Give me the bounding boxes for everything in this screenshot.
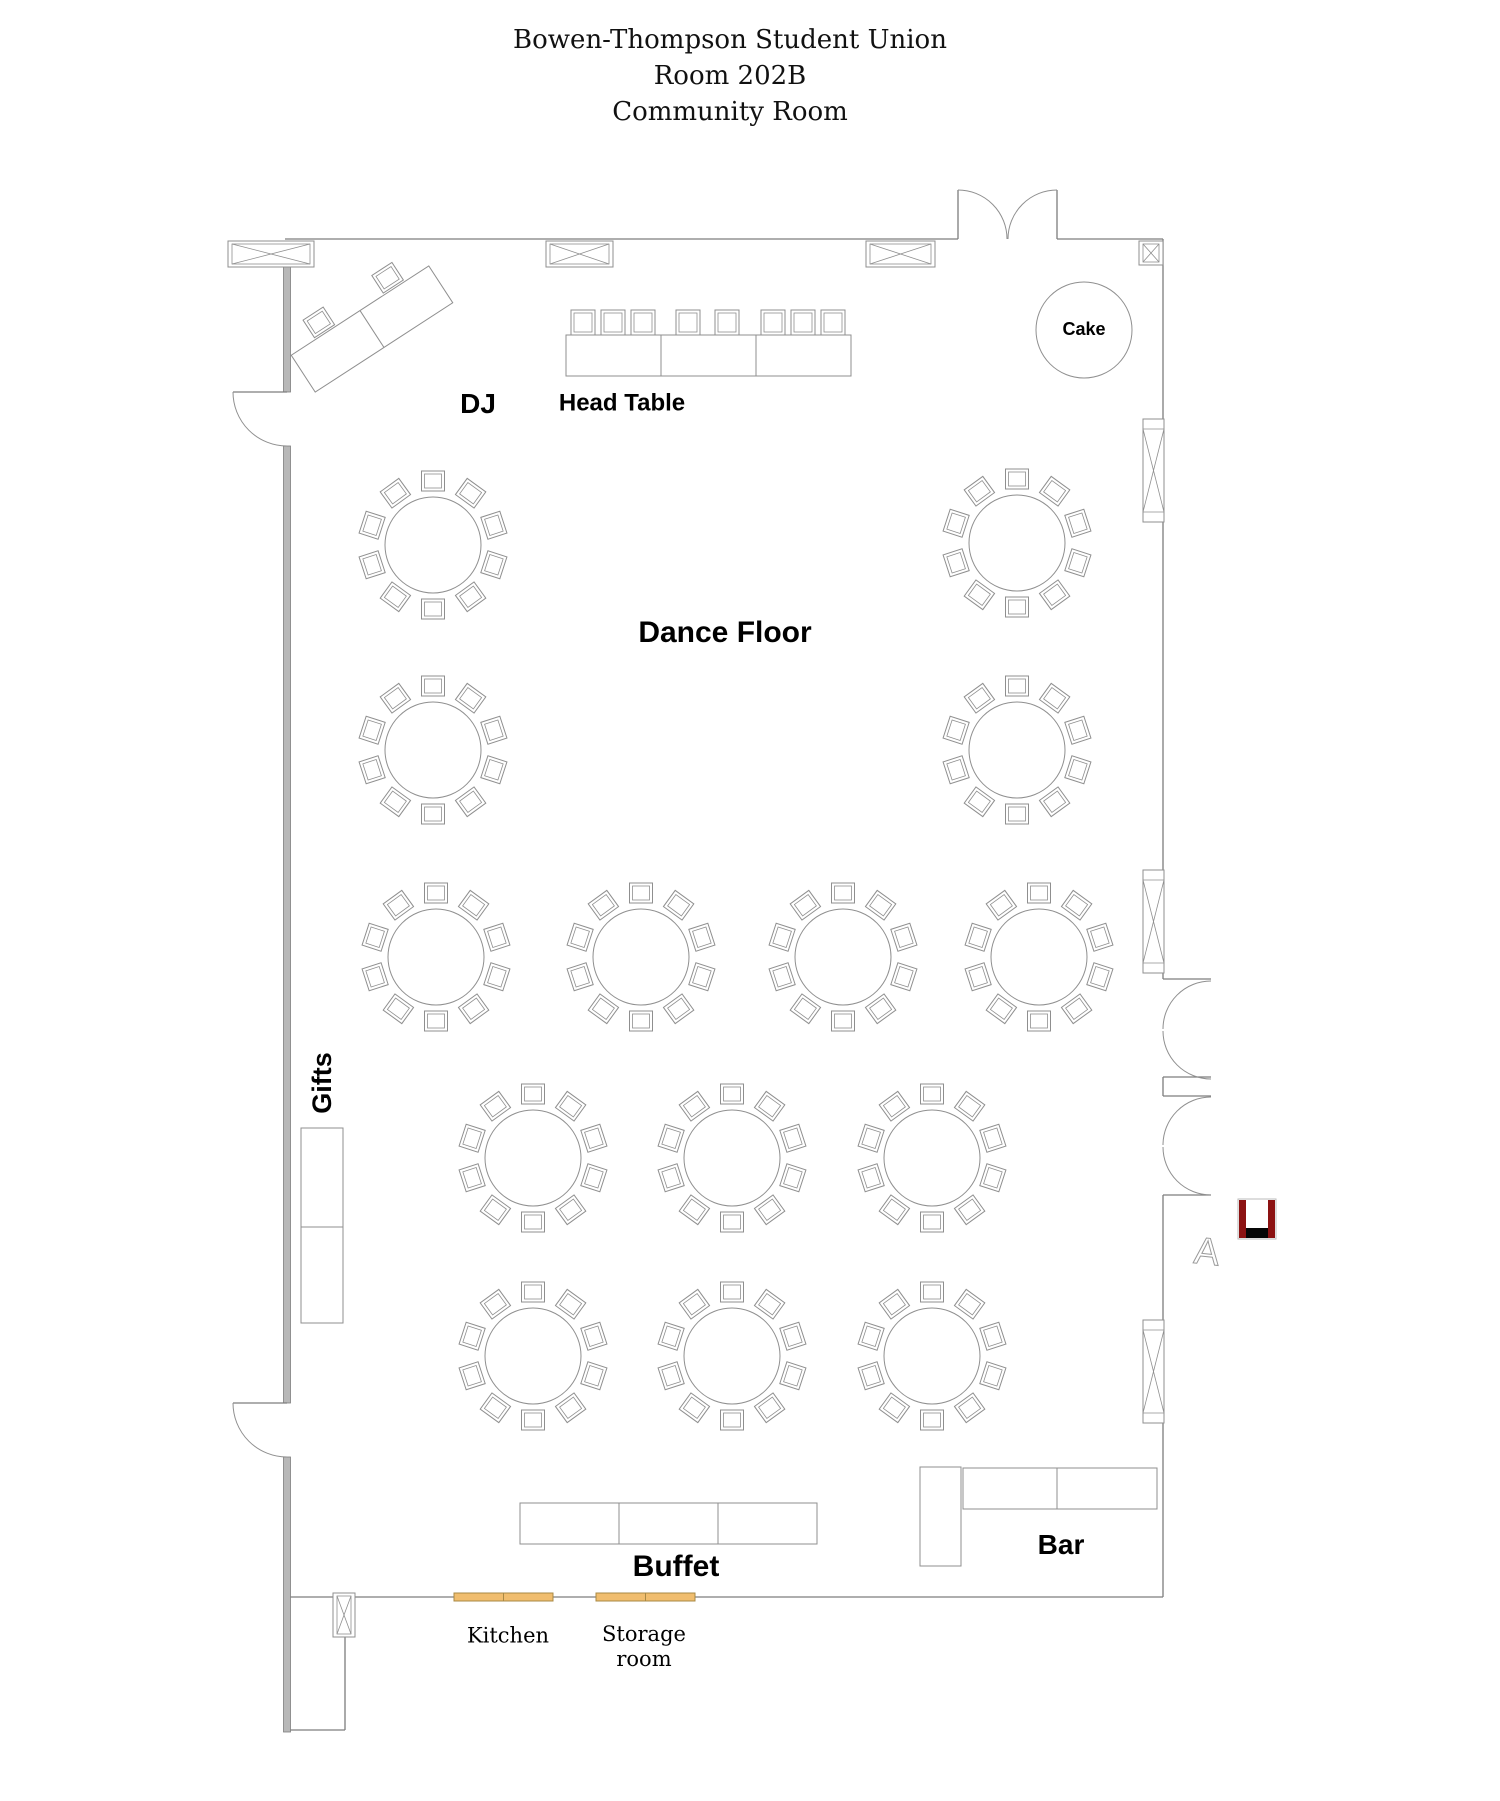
- chair: [858, 1124, 884, 1152]
- chair: [721, 1282, 744, 1302]
- chair: [480, 1195, 510, 1225]
- chair: [754, 1289, 784, 1319]
- chair: [581, 1322, 607, 1350]
- chair: [567, 963, 593, 991]
- chair: [380, 478, 410, 508]
- door-swing-arc: [1163, 1031, 1211, 1079]
- chair: [380, 787, 410, 817]
- door-swing-arc: [958, 190, 1007, 239]
- chair: [964, 476, 994, 506]
- chair: [980, 1164, 1006, 1192]
- chair: [943, 756, 969, 784]
- chair: [721, 1410, 744, 1430]
- chair: [588, 994, 618, 1024]
- chair: [1061, 890, 1091, 920]
- chair: [1006, 469, 1029, 489]
- chair: [1065, 549, 1091, 577]
- bar-label: Bar: [1038, 1528, 1085, 1562]
- buffet-label: Buffet: [633, 1549, 720, 1585]
- chair: [658, 1164, 684, 1192]
- a-section-marker: A: [1192, 1230, 1222, 1274]
- round-table: [769, 883, 917, 1031]
- chair: [769, 963, 795, 991]
- chair: [980, 1322, 1006, 1350]
- wall-thick: [284, 446, 291, 1403]
- round-table: [359, 471, 507, 619]
- chair: [986, 994, 1016, 1024]
- chair: [459, 1322, 485, 1350]
- chair: [481, 716, 507, 744]
- chair: [658, 1322, 684, 1350]
- chair: [458, 994, 488, 1024]
- chair: [689, 923, 715, 951]
- wall-thick: [284, 267, 291, 392]
- chair: [790, 890, 820, 920]
- chair: [921, 1212, 944, 1232]
- chair: [780, 1164, 806, 1192]
- chair: [658, 1124, 684, 1152]
- chair: [581, 1362, 607, 1390]
- chair: [921, 1084, 944, 1104]
- chair: [425, 1011, 448, 1031]
- chair: [858, 1362, 884, 1390]
- column-symbol: [866, 241, 935, 267]
- chair: [1039, 476, 1069, 506]
- round-table: [658, 1282, 806, 1430]
- chair: [522, 1282, 545, 1302]
- chair: [754, 1393, 784, 1423]
- chair: [1006, 597, 1029, 617]
- chair: [832, 883, 855, 903]
- chair: [581, 1164, 607, 1192]
- round-table: [658, 1084, 806, 1232]
- chair: [986, 890, 1016, 920]
- gifts-table: [301, 1128, 343, 1323]
- chair: [679, 1195, 709, 1225]
- chair: [362, 923, 388, 951]
- chair: [481, 511, 507, 539]
- chair: [455, 478, 485, 508]
- chair: [954, 1091, 984, 1121]
- chair: [484, 963, 510, 991]
- chair: [422, 804, 445, 824]
- chair: [879, 1393, 909, 1423]
- page-title-line3: Community Room: [612, 97, 848, 127]
- chair: [1028, 1011, 1051, 1031]
- chair: [790, 994, 820, 1024]
- chair: [943, 716, 969, 744]
- buffet-table: [520, 1503, 817, 1544]
- door-swing-arc: [1163, 1147, 1211, 1195]
- chair: [458, 890, 488, 920]
- chair: [858, 1164, 884, 1192]
- column-symbol: [546, 241, 613, 267]
- chair: [383, 890, 413, 920]
- chair: [879, 1289, 909, 1319]
- dj-table: [279, 247, 453, 393]
- chair: [954, 1289, 984, 1319]
- chair: [455, 683, 485, 713]
- chair: [689, 963, 715, 991]
- chair: [865, 890, 895, 920]
- chair: [761, 310, 785, 335]
- chair: [754, 1195, 784, 1225]
- chair: [1039, 683, 1069, 713]
- door-swing-arc: [233, 392, 287, 446]
- door-swing-arc: [1163, 1097, 1211, 1145]
- round-table: [943, 676, 1091, 824]
- chair: [1065, 716, 1091, 744]
- chair: [891, 923, 917, 951]
- chair: [480, 1393, 510, 1423]
- chair: [480, 1289, 510, 1319]
- round-table: [858, 1084, 1006, 1232]
- chair: [459, 1362, 485, 1390]
- chair: [858, 1322, 884, 1350]
- floor-plan-drawing: A: [0, 0, 1500, 1801]
- chair: [481, 756, 507, 784]
- column-symbol: [228, 241, 314, 267]
- chair: [780, 1362, 806, 1390]
- round-table: [459, 1282, 607, 1430]
- chair: [954, 1195, 984, 1225]
- chair: [455, 787, 485, 817]
- chair: [555, 1289, 585, 1319]
- floor-plan-page: A Bowen-Thompson Student Union Room 202B…: [0, 0, 1500, 1801]
- chair: [1006, 676, 1029, 696]
- chair: [359, 716, 385, 744]
- chair: [1065, 756, 1091, 784]
- chair: [921, 1410, 944, 1430]
- chair: [891, 963, 917, 991]
- chair: [943, 509, 969, 537]
- chair: [567, 923, 593, 951]
- chair: [1028, 883, 1051, 903]
- chair: [721, 1212, 744, 1232]
- round-table: [943, 469, 1091, 617]
- round-table: [362, 883, 510, 1031]
- chair: [601, 310, 625, 335]
- column-symbol: [1139, 241, 1163, 265]
- chair: [383, 994, 413, 1024]
- chair: [791, 310, 815, 335]
- chair: [422, 676, 445, 696]
- chair: [459, 1164, 485, 1192]
- chair: [484, 923, 510, 951]
- cake-label: Cake: [1062, 319, 1105, 341]
- chair: [663, 994, 693, 1024]
- round-table: [858, 1282, 1006, 1430]
- chair: [630, 883, 653, 903]
- chair: [832, 1011, 855, 1031]
- chair: [1039, 787, 1069, 817]
- chair: [964, 683, 994, 713]
- round-table: [359, 676, 507, 824]
- chair: [1039, 580, 1069, 610]
- chair: [630, 1011, 653, 1031]
- chair: [522, 1084, 545, 1104]
- chair: [769, 923, 795, 951]
- chair: [455, 582, 485, 612]
- chair: [658, 1362, 684, 1390]
- round-table: [965, 883, 1113, 1031]
- dance-floor-label: Dance Floor: [638, 615, 811, 651]
- chair: [425, 883, 448, 903]
- chair: [954, 1393, 984, 1423]
- door-swing-arc: [1163, 981, 1211, 1029]
- chair: [380, 683, 410, 713]
- chair: [780, 1124, 806, 1152]
- chair: [980, 1362, 1006, 1390]
- chair: [480, 1091, 510, 1121]
- chair: [754, 1091, 784, 1121]
- chair: [679, 1091, 709, 1121]
- chair: [964, 787, 994, 817]
- chair: [980, 1124, 1006, 1152]
- chair: [481, 551, 507, 579]
- chair: [522, 1410, 545, 1430]
- chair: [821, 310, 845, 335]
- chair: [721, 1084, 744, 1104]
- chair: [631, 310, 655, 335]
- chair: [679, 1393, 709, 1423]
- chair: [921, 1282, 944, 1302]
- chair: [715, 310, 739, 335]
- chair: [879, 1091, 909, 1121]
- chair: [780, 1322, 806, 1350]
- chair: [571, 310, 595, 335]
- chair: [965, 963, 991, 991]
- chair: [676, 310, 700, 335]
- head-table: [566, 310, 851, 376]
- chair: [1087, 923, 1113, 951]
- dj-label: DJ: [460, 387, 496, 421]
- chair: [679, 1289, 709, 1319]
- service-door: [454, 1593, 553, 1601]
- chair: [1087, 963, 1113, 991]
- chair: [943, 549, 969, 577]
- page-title-line2: Room 202B: [654, 61, 807, 91]
- exit-marker-icon: [1238, 1199, 1276, 1239]
- door-swing-arc: [1008, 190, 1057, 239]
- chair: [359, 756, 385, 784]
- chair: [422, 599, 445, 619]
- chair: [663, 890, 693, 920]
- wall-thick: [284, 1457, 291, 1732]
- chair: [1065, 509, 1091, 537]
- chair: [965, 923, 991, 951]
- chair: [359, 511, 385, 539]
- door-swing-arc: [233, 1403, 287, 1457]
- round-table: [567, 883, 715, 1031]
- round-table: [459, 1084, 607, 1232]
- chair: [555, 1393, 585, 1423]
- chair: [359, 551, 385, 579]
- window-symbol: [1143, 1320, 1164, 1423]
- chair: [555, 1195, 585, 1225]
- chair: [380, 582, 410, 612]
- chair: [1006, 804, 1029, 824]
- chair: [879, 1195, 909, 1225]
- storage-room-label: Storage room: [602, 1622, 686, 1672]
- chair: [865, 994, 895, 1024]
- chair: [362, 963, 388, 991]
- column-symbol: [333, 1593, 355, 1637]
- chair: [522, 1212, 545, 1232]
- chair: [588, 890, 618, 920]
- gifts-label: Gifts: [306, 1052, 338, 1114]
- chair: [964, 580, 994, 610]
- page-title-line1: Bowen-Thompson Student Union: [513, 25, 947, 55]
- window-symbol: [1143, 870, 1164, 973]
- chair: [555, 1091, 585, 1121]
- head-table-label: Head Table: [559, 390, 685, 419]
- chair: [581, 1124, 607, 1152]
- window-symbol: [1143, 419, 1164, 522]
- chair: [422, 471, 445, 491]
- kitchen-label: Kitchen: [467, 1623, 549, 1648]
- chair: [459, 1124, 485, 1152]
- chair: [1061, 994, 1091, 1024]
- service-door: [596, 1593, 695, 1601]
